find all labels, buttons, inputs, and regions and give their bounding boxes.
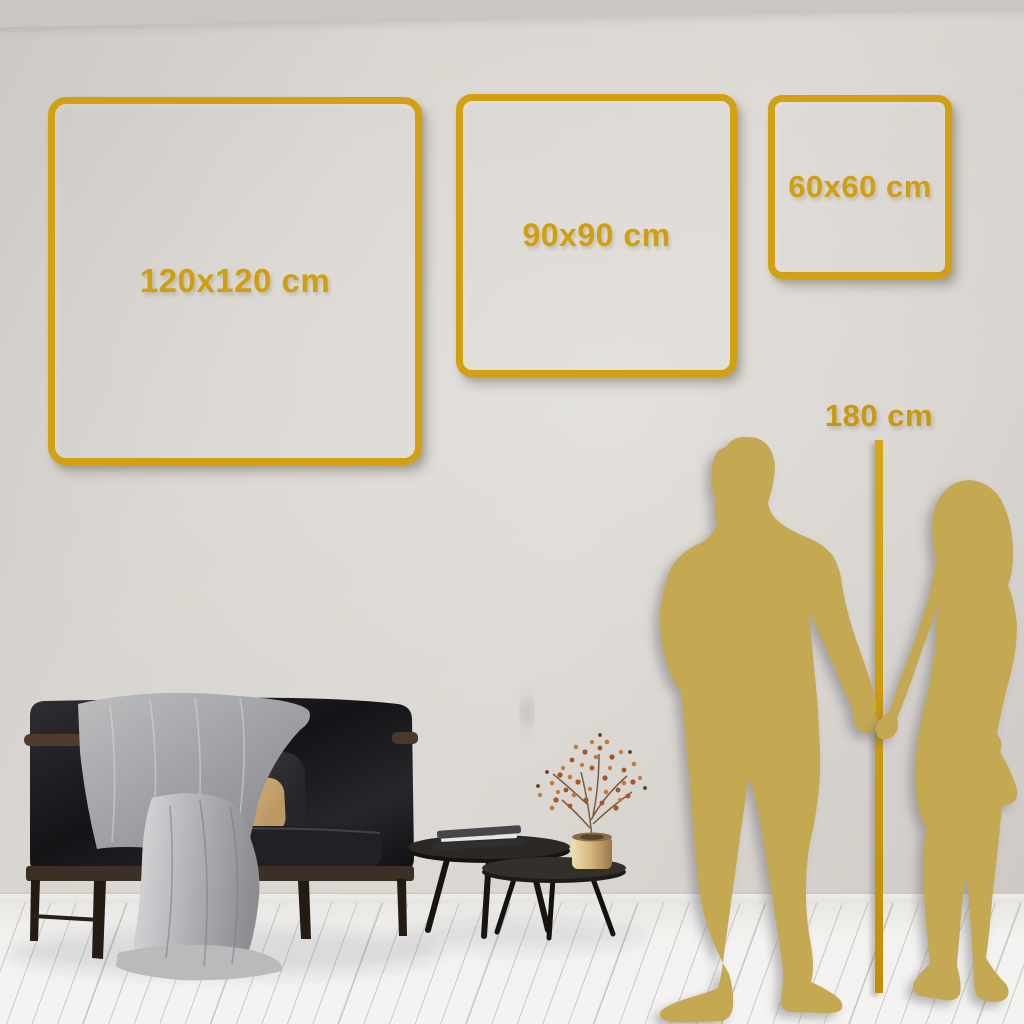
ceiling-edge <box>0 0 1024 28</box>
sofa-back-cushion <box>133 752 305 836</box>
sofa-shell <box>30 698 414 874</box>
armrest-cap-left <box>24 734 110 746</box>
size-frame-60x60: 60x60 cm <box>768 95 952 279</box>
blanket-armrest <box>78 693 310 851</box>
beige-pillow <box>166 777 287 839</box>
seat-cushion <box>148 826 382 870</box>
armrest-cap-right <box>392 732 418 744</box>
blanket-folds <box>110 698 244 848</box>
size-frame-90x90: 90x90 cm <box>456 94 737 377</box>
berries-deep <box>536 733 647 790</box>
size-guide-scene: 120x120 cm 90x90 cm 60x60 cm 180 cm <box>0 0 1024 1024</box>
books-stack <box>433 825 525 850</box>
height-ruler-label: 180 cm <box>804 398 954 434</box>
size-frame-120x120: 120x120 cm <box>48 97 422 465</box>
gold-vase <box>572 833 612 870</box>
sofa-wood-rail <box>26 866 414 881</box>
height-ruler-line <box>875 440 883 993</box>
wall-smudge <box>523 697 531 727</box>
berries-light <box>538 740 642 811</box>
berries-dark <box>553 746 635 811</box>
branch-arrangement <box>536 733 647 838</box>
size-label-120x120: 120x120 cm <box>140 262 330 300</box>
size-label-60x60: 60x60 cm <box>788 169 932 205</box>
size-label-90x90: 90x90 cm <box>522 217 670 254</box>
wood-floor <box>0 903 1024 1024</box>
